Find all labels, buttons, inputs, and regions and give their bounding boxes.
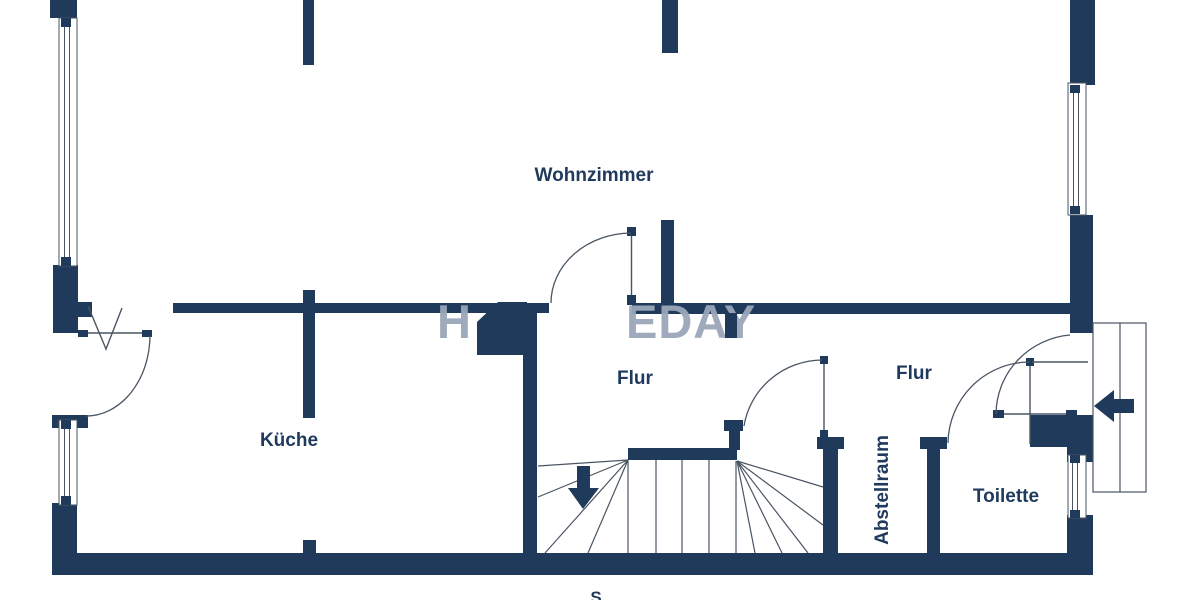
- wall-storage-right: [927, 449, 940, 553]
- door-hinge: [627, 295, 636, 305]
- window-left-top: [59, 18, 77, 266]
- door-frame: [724, 420, 743, 431]
- entrance-steps-exterior: [1093, 323, 1146, 492]
- wall-segment: [1070, 215, 1093, 333]
- window-left-bottom: [59, 420, 77, 505]
- window-frame: [1068, 83, 1086, 215]
- wall-toilet-top: [1030, 415, 1070, 447]
- wall-kitchen-divider-stub: [303, 540, 316, 554]
- floor-plan: H EDAY: [0, 0, 1200, 600]
- door-hinge: [820, 430, 828, 438]
- label-flur-left: Flur: [617, 368, 653, 389]
- entrance-mark-icon: [88, 306, 122, 349]
- door-stop: [142, 330, 152, 337]
- door-swing-arc: [744, 360, 822, 426]
- wall-segment: [50, 0, 77, 18]
- room-labels: Wohnzimmer Küche Flur Flur Toilette Abst…: [260, 165, 1039, 600]
- window-frame: [59, 18, 77, 266]
- door-frame: [729, 431, 740, 450]
- window-cap: [1070, 206, 1080, 214]
- door-stop: [1066, 410, 1077, 418]
- window-cap: [1070, 510, 1080, 518]
- wall-stub-hall: [725, 313, 737, 338]
- door-hinge: [627, 227, 636, 236]
- window-cap: [61, 420, 71, 429]
- door-frame: [920, 437, 947, 449]
- label-wohnzimmer: Wohnzimmer: [535, 165, 655, 186]
- door-swing-arc: [948, 362, 1030, 443]
- label-kueche: Küche: [260, 430, 318, 451]
- interior-walls: [173, 0, 1070, 555]
- wall-kitchen-divider: [303, 290, 315, 418]
- window-cap: [61, 496, 71, 505]
- label-compass-south: S: [590, 588, 601, 600]
- door-stop: [993, 410, 1004, 418]
- watermark-logo-letter: H: [437, 295, 472, 348]
- wall-stub-top-1: [303, 0, 314, 65]
- wall-stair-landing: [628, 448, 737, 460]
- window-toilet: [1068, 455, 1086, 518]
- door-livingroom: [551, 227, 636, 305]
- wall-segment-bottom: [52, 553, 1093, 575]
- door-frame: [817, 437, 844, 449]
- wall-storage-left: [823, 449, 838, 553]
- window-cap: [1070, 85, 1080, 93]
- entrance-arrow-icon: [1094, 390, 1134, 422]
- door-stop: [78, 330, 88, 337]
- wall-segment: [1070, 0, 1095, 85]
- label-abstellraum: Abstellraum: [872, 435, 893, 545]
- wall-stub-top-2: [662, 0, 678, 53]
- door-apartment-entrance-left: [78, 306, 152, 416]
- door-swing-arc: [996, 335, 1070, 414]
- window-cap: [1070, 455, 1080, 463]
- wall-segment: [53, 265, 78, 333]
- window-cap: [61, 18, 71, 27]
- door-swing-arc: [86, 336, 150, 416]
- door-staircase: [744, 356, 828, 438]
- wall-segment: [1067, 515, 1093, 575]
- staircase-interior: [538, 460, 823, 553]
- window-frame: [59, 420, 77, 505]
- door-swing-arc: [551, 233, 631, 303]
- door-house-entrance-right: [993, 335, 1077, 418]
- wall-stub-livingroom: [661, 220, 674, 305]
- stairs-down-arrow-icon: [568, 466, 599, 509]
- label-toilette: Toilette: [973, 486, 1039, 507]
- window-cap: [61, 257, 71, 266]
- label-flur-right: Flur: [896, 363, 932, 384]
- window-right-top: [1068, 83, 1086, 215]
